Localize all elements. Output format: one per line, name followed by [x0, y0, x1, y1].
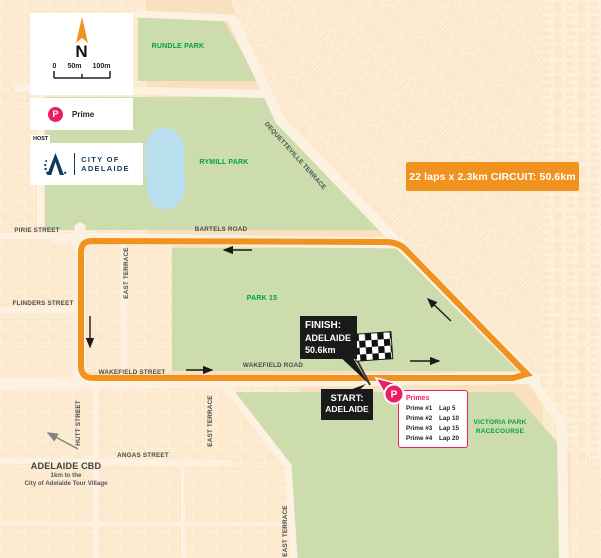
street-label-wakefield-street: WAKEFIELD STREET [99, 369, 166, 376]
finish-distance: 50.6km [305, 344, 357, 356]
cbd-title: ADELAIDE CBD [14, 461, 118, 472]
prime-row-3: Prime #3 Lap 15 [406, 424, 467, 434]
finish-city: ADELAIDE [305, 332, 357, 344]
legend-compass-scale: N 0 50m 100m [30, 13, 133, 95]
logo-line2: ADELAIDE [81, 164, 130, 173]
prime-legend-label: Prime [72, 110, 94, 119]
label-rymill-park: RYMILL PARK [199, 159, 248, 166]
street-label-wakefield-road: WAKEFIELD ROAD [243, 362, 303, 369]
label-rundle-park: RUNDLE PARK [152, 43, 205, 50]
prime-1-lap: Lap 5 [439, 404, 455, 414]
prime-2-name: Prime #2 [406, 414, 439, 424]
cbd-line2: City of Adelaide Tour Village [14, 480, 118, 488]
street-label-east-terrace-south1: EAST TERRACE [207, 395, 214, 446]
primes-title: Primes [406, 395, 467, 402]
north-label: N [75, 45, 87, 59]
prime-4-name: Prime #4 [406, 434, 439, 444]
prime-legend-icon: P [48, 107, 63, 122]
label-park-15: PARK 15 [247, 295, 277, 302]
scale-zero: 0 [53, 63, 57, 70]
prime-pin-icon: P [374, 374, 408, 408]
host-logo-card: CITY OF ADELAIDE [30, 143, 143, 185]
start-city: ADELAIDE [321, 404, 373, 415]
start-title: START: [321, 393, 373, 404]
logo-divider [74, 153, 75, 175]
street-label-angas: ANGAS STREET [117, 452, 169, 459]
primes-panel: Primes Prime #1 Lap 5 Prime #2 Lap 10 Pr… [398, 390, 468, 448]
circuit-banner: 22 laps x 2.3km CIRCUIT: 50.6km [406, 162, 579, 191]
start-callout: START: ADELAIDE [321, 389, 373, 420]
city-of-adelaide-logo-icon [43, 151, 68, 177]
finish-callout: FINISH: ADELAIDE 50.6km [300, 316, 357, 359]
label-racecourse: RACECOURSE [476, 428, 525, 435]
prime-row-1: Prime #1 Lap 5 [406, 404, 467, 414]
prime-3-lap: Lap 15 [439, 424, 459, 434]
street-label-east-terrace-south2: EAST TERRACE [282, 505, 289, 556]
legend-prime: P Prime [30, 98, 133, 130]
street-label-pirie: PIRIE STREET [14, 227, 59, 234]
scale-labels: 0 50m 100m [53, 63, 111, 70]
logo-line1: CITY OF [81, 155, 130, 164]
prime-row-4: Prime #4 Lap 20 [406, 434, 467, 444]
scale-bar-icon [53, 70, 111, 80]
cbd-note: ADELAIDE CBD 1km to the City of Adelaide… [14, 461, 118, 488]
street-label-flinders: FLINDERS STREET [12, 300, 73, 307]
north-arrow-icon [74, 17, 90, 45]
prime-pin-letter: P [391, 390, 398, 401]
host-label: HOST [31, 135, 50, 143]
adelaide-circuit-map: RUNDLE PARK RYMILL PARK PARK 15 VICTORIA… [0, 0, 601, 558]
street-label-east-terrace-north: EAST TERRACE [123, 247, 130, 298]
rymill-lake [145, 128, 186, 210]
prime-1-name: Prime #1 [406, 404, 439, 414]
prime-3-name: Prime #3 [406, 424, 439, 434]
street-label-hutt: HUTT STREET [75, 400, 82, 446]
prime-4-lap: Lap 20 [439, 434, 459, 444]
cbd-line1: 1km to the [14, 472, 118, 480]
street-label-bartels: BARTELS ROAD [195, 226, 248, 233]
finish-title: FINISH: [305, 320, 357, 332]
prime-row-2: Prime #2 Lap 10 [406, 414, 467, 424]
scale-fifty: 50m [67, 63, 81, 70]
label-victoria-park: VICTORIA PARK [473, 419, 526, 426]
prime-2-lap: Lap 10 [439, 414, 459, 424]
scale-hundred: 100m [93, 63, 111, 70]
